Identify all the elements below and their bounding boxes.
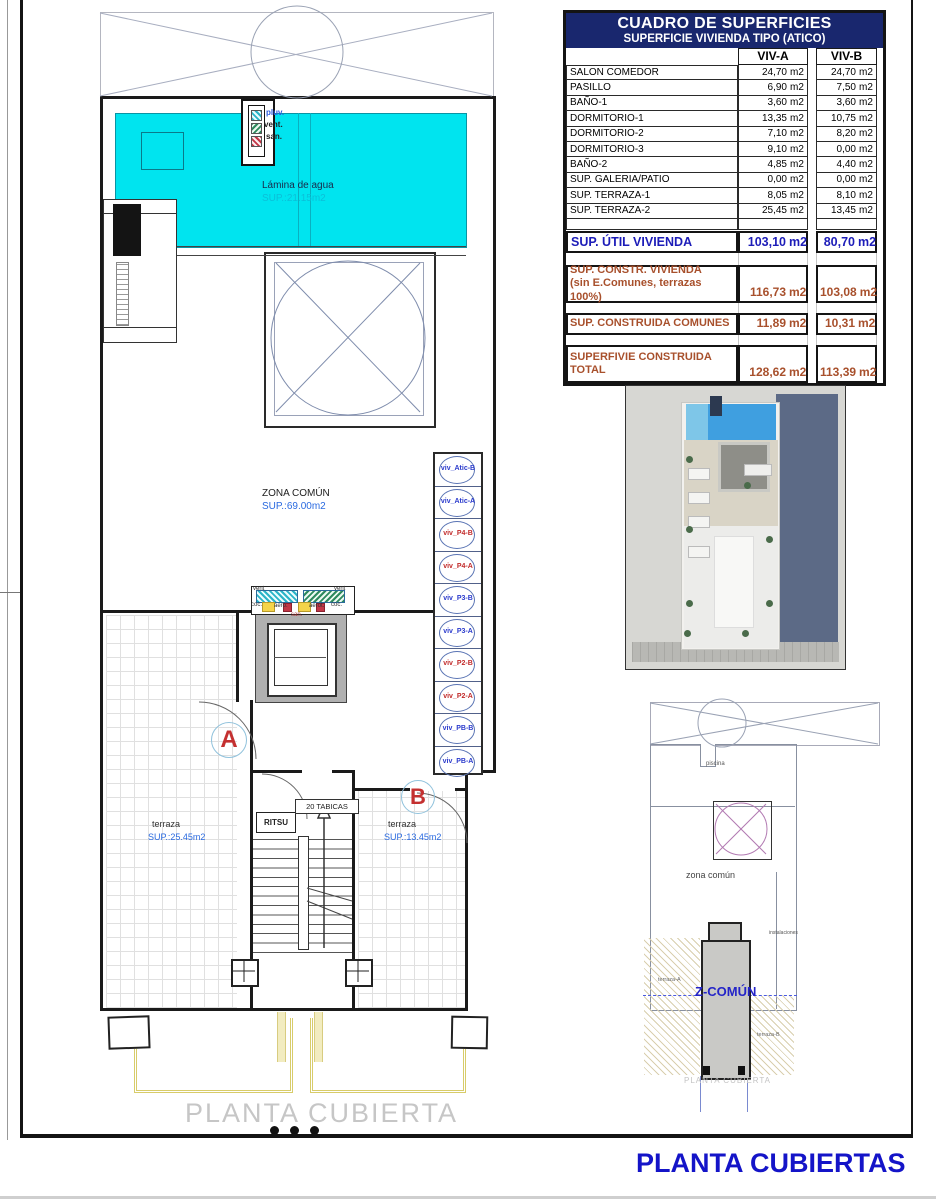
- wall-segment: [100, 96, 103, 1011]
- render-roof-box: [710, 396, 722, 416]
- column-marker: [345, 959, 373, 987]
- riser-label-vent: vent.: [264, 120, 283, 129]
- render-plant: [744, 482, 751, 489]
- parapet-outline: [310, 1018, 466, 1093]
- terraza-a-label: terraza: [152, 819, 180, 829]
- site-caption: PLANTA CUBIERTA: [684, 1076, 771, 1085]
- total-label: SUPERFIVIE CONSTRUIDATOTAL: [566, 345, 738, 383]
- viv-b-value: 7,50m2: [816, 80, 877, 95]
- tabicas-box: 20 TABICAS: [295, 799, 359, 814]
- frame-line-bottom: [20, 1134, 913, 1138]
- total-section-row: SUPERFIVIE CONSTRUIDATOTAL 128,62m2 113,…: [566, 345, 883, 383]
- pool-area-label: SUP.:21.15m2: [262, 193, 326, 204]
- render-plant: [686, 600, 693, 607]
- site-core-foot: [703, 1066, 710, 1075]
- riser-cell-label: viv_Atic-A: [435, 498, 481, 505]
- row-label: BAÑO-2: [566, 157, 738, 172]
- row-label: SUP. TERRAZA-2: [566, 204, 738, 219]
- render-pool-shallow: [686, 404, 708, 440]
- column-marker: [231, 959, 259, 987]
- annex-ladder: [116, 262, 129, 326]
- riser-cell-label: viv_PB-A: [435, 758, 481, 765]
- door-b-letter: B: [410, 784, 426, 810]
- stair-landing: [256, 953, 352, 1007]
- row-label: BAÑO-1: [566, 96, 738, 111]
- stair-stringer: [298, 836, 309, 950]
- table-row: DORMITORIO-113,35m210,75m2: [566, 111, 883, 126]
- page-edge-line: [0, 1196, 936, 1199]
- riser-label-san: san.: [266, 132, 282, 141]
- terraza-b-area-label: SUP.:13.45m2: [384, 832, 441, 842]
- render-lounger: [688, 546, 710, 558]
- frame-line-left: [20, 0, 23, 1138]
- site-piscina-label: piscina: [706, 761, 725, 767]
- door-a-letter: A: [220, 726, 237, 754]
- site-terraza-a-label: terraza-A: [658, 977, 681, 983]
- riser-chip-pluvial: [251, 110, 262, 121]
- site-zona-comun-label: zona común: [686, 870, 735, 880]
- surface-table: CUADRO DE SUPERFICIES SUPERFICIE VIVIEND…: [563, 10, 886, 386]
- render-lounger: [688, 492, 710, 504]
- viv-b-value: 8,20m2: [816, 127, 877, 142]
- row-label: SUP. GALERIA/PATIO: [566, 173, 738, 188]
- skylight-inner-frame: [274, 262, 424, 416]
- viv-a-value: 9,10m2: [738, 142, 808, 157]
- viv-b-value: 10,75m2: [816, 111, 877, 126]
- riser-cell: viv_P3-B: [435, 584, 481, 617]
- render-lounger: [688, 468, 710, 480]
- wall-segment: [465, 770, 468, 1011]
- gap-row: [566, 335, 883, 345]
- frame-line-left-thin: [7, 0, 8, 1140]
- viv-a-value: 4,85m2: [738, 157, 808, 172]
- site-instalaciones-label: instalaciones: [769, 930, 798, 936]
- shaft-coc-label: coc.: [251, 602, 262, 608]
- render-plant: [742, 630, 749, 637]
- render-plant: [686, 526, 693, 533]
- pool-name-label: Lámina de agua: [262, 180, 334, 191]
- annex-bar: [103, 327, 177, 343]
- annex-chimney: [113, 204, 141, 256]
- comunes-section-row: SUP. CONSTRUIDA COMUNES 11,89m2 10,31m2: [566, 313, 883, 335]
- pool-walkway: [174, 246, 466, 256]
- zona-comun-label: ZONA COMÚN: [262, 488, 330, 499]
- riser-cell: viv_P4-B: [435, 519, 481, 552]
- pool-step-outline: [141, 132, 184, 170]
- comunes-label: SUP. CONSTRUIDA COMUNES: [566, 313, 738, 335]
- elevator-car-line: [274, 657, 326, 658]
- empty-cell: [566, 48, 738, 65]
- plan-caption: PLANTA CUBIERTA: [185, 1098, 458, 1129]
- column-gap: [808, 48, 816, 65]
- shaft-coc-label: coc.: [331, 602, 342, 608]
- zona-comun-area-label: SUP.:69.00m2: [262, 501, 326, 512]
- row-label: PASILLO: [566, 80, 738, 95]
- riser-cell: viv_Atic-A: [435, 487, 481, 520]
- wall-segment: [250, 770, 302, 773]
- table-row: BAÑO-24,85m24,40m2: [566, 157, 883, 172]
- site-skylight: [713, 801, 772, 860]
- constr-section-row: SUP. CONSTR. VIVIENDA(sin E.Comunes, ter…: [566, 265, 883, 303]
- comunes-viv-a: 11,89m2: [738, 313, 808, 335]
- shaft-aero-label: aero.: [274, 603, 288, 609]
- viv-a-value: 6,90m2: [738, 80, 808, 95]
- render-plant: [766, 536, 773, 543]
- viv-b-value: 0,00m2: [816, 142, 877, 157]
- tabicas-label: 20 TABICAS: [306, 802, 348, 811]
- riser-cell: viv_P3-A: [435, 617, 481, 650]
- riser-chip-san: [251, 136, 262, 147]
- table-column-header: VIV-A VIV-B: [566, 48, 883, 65]
- riser-cell: viv_Atic-B: [435, 454, 481, 487]
- render-lounger: [744, 464, 772, 476]
- util-label: SUP. ÚTIL VIVIENDA: [566, 231, 738, 253]
- door-b-marker: B: [401, 780, 435, 814]
- viv-a-value: 0,00m2: [738, 173, 808, 188]
- riser-cell-label: viv_P2-A: [435, 693, 481, 700]
- terraza-b-label: terraza: [388, 819, 416, 829]
- row-label: DORMITORIO-2: [566, 127, 738, 142]
- riser-cell: viv_PB-A: [435, 747, 481, 779]
- table-row: PASILLO6,90m27,50m2: [566, 80, 883, 95]
- wall-segment: [455, 788, 468, 791]
- shaft-san-label: san.: [291, 612, 302, 618]
- constr-viv-b: 103,08m2: [816, 265, 877, 303]
- table-title: CUADRO DE SUPERFICIES: [566, 15, 883, 33]
- gap-row: [566, 303, 883, 313]
- terraza-a-floor: [106, 615, 237, 1008]
- table-row: SUP. TERRAZA-18,05m28,10m2: [566, 188, 883, 203]
- riser-stack: viv_Atic-B viv_Atic-A viv_P4-B viv_P4-A …: [433, 452, 483, 775]
- gap-row: [566, 253, 883, 265]
- util-total-row: SUP. ÚTIL VIVIENDA 103,10m2 80,70m2: [566, 231, 883, 253]
- site-core: [701, 940, 751, 1080]
- table-subtitle: SUPERFICIE VIVIENDA TIPO (ATICO): [566, 33, 883, 45]
- drawing-sheet: pluv. vent. san. Lámina de agua SUP.:21.…: [0, 0, 936, 1200]
- site-core-foot: [738, 1066, 745, 1075]
- wall-segment: [100, 1008, 468, 1011]
- table-row: DORMITORIO-27,10m28,20m2: [566, 127, 883, 142]
- door-a-marker: A: [211, 722, 247, 758]
- constr-label: SUP. CONSTR. VIVIENDA(sin E.Comunes, ter…: [566, 265, 738, 303]
- column-viv-a: VIV-A: [738, 48, 808, 65]
- viv-b-value: 24,70m2: [816, 65, 877, 80]
- row-label: DORMITORIO-3: [566, 142, 738, 157]
- riser-cell-label: viv_P3-B: [435, 595, 481, 602]
- riser-cell: viv_P2-B: [435, 649, 481, 682]
- viv-b-value: 4,40m2: [816, 157, 877, 172]
- shaft-vent-label: vent: [334, 586, 345, 592]
- riser-label-pluv: pluv.: [266, 108, 284, 117]
- ritsu-label: RITSU: [264, 818, 288, 827]
- table-row: SUP. GALERIA/PATIO0,00m20,00m2: [566, 173, 883, 188]
- riser-cell-label: viv_P2-B: [435, 660, 481, 667]
- wall-segment: [100, 96, 496, 99]
- viv-b-value: 13,45m2: [816, 204, 877, 219]
- total-viv-a: 128,62m2: [738, 345, 808, 383]
- util-viv-b: 80,70m2: [816, 231, 877, 253]
- crossed-roof-rect: [100, 12, 494, 98]
- constr-viv-a: 116,73m2: [738, 265, 808, 303]
- total-viv-b: 113,39m2: [816, 345, 877, 383]
- corner-box: [451, 1016, 489, 1050]
- blank-row: [566, 219, 883, 230]
- aerial-render: [625, 385, 846, 670]
- render-plant: [766, 600, 773, 607]
- site-crossed-rect: [650, 702, 880, 746]
- row-label: SALON COMEDOR: [566, 65, 738, 80]
- surface-table-header: CUADRO DE SUPERFICIES SUPERFICIE VIVIEND…: [566, 13, 883, 48]
- util-viv-a: 103,10m2: [738, 231, 808, 253]
- riser-cell: viv_P2-A: [435, 682, 481, 715]
- pool-water: [174, 199, 467, 248]
- riser-cell-label: viv_P4-A: [435, 563, 481, 570]
- column-viv-b: VIV-B: [816, 48, 877, 65]
- shaft-aerot-label: aerot.: [309, 603, 324, 609]
- row-label: DORMITORIO-1: [566, 111, 738, 126]
- viv-a-value: 24,70m2: [738, 65, 808, 80]
- viv-a-value: 25,45m2: [738, 204, 808, 219]
- site-terraza-a-hatch: [644, 938, 700, 1075]
- shaft-vent-label: vent: [253, 586, 264, 592]
- wall-segment: [493, 96, 496, 772]
- viv-b-value: 0,00m2: [816, 173, 877, 188]
- riser-cell: viv_PB-B: [435, 714, 481, 747]
- viv-a-value: 13,35m2: [738, 111, 808, 126]
- terraza-a-area-label: SUP.:25.45m2: [148, 832, 205, 842]
- table-row: BAÑO-13,60m23,60m2: [566, 96, 883, 111]
- frame-stub-left: [0, 592, 21, 593]
- wall-segment: [236, 612, 239, 702]
- wall-segment: [332, 770, 355, 773]
- render-plant: [686, 456, 693, 463]
- render-roof-panel: [714, 536, 754, 628]
- table-row: SALON COMEDOR24,70m224,70m2: [566, 65, 883, 80]
- viv-a-value: 7,10m2: [738, 127, 808, 142]
- site-instalaciones-line: [776, 872, 777, 1009]
- corner-box: [107, 1015, 150, 1049]
- riser-chip-vent: [251, 123, 262, 134]
- table-row: DORMITORIO-39,10m20,00m2: [566, 142, 883, 157]
- ritsu-box: RITSU: [256, 812, 296, 833]
- sheet-title: PLANTA CUBIERTAS: [636, 1148, 906, 1179]
- comunes-viv-b: 10,31m2: [816, 313, 877, 335]
- parapet-outline: [134, 1018, 293, 1093]
- site-core-label: Z-COMÚN: [695, 984, 756, 999]
- frame-line-right: [911, 0, 913, 1138]
- row-label: SUP. TERRAZA-1: [566, 188, 738, 203]
- viv-a-value: 3,60m2: [738, 96, 808, 111]
- riser-cell: viv_P4-A: [435, 552, 481, 585]
- riser-cell-label: viv_PB-B: [435, 725, 481, 732]
- viv-b-value: 8,10m2: [816, 188, 877, 203]
- render-plant: [684, 630, 691, 637]
- riser-cell-label: viv_P3-A: [435, 628, 481, 635]
- viv-a-value: 8,05m2: [738, 188, 808, 203]
- table-row: SUP. TERRAZA-225,45m213,45m2: [566, 204, 883, 219]
- riser-cell-label: viv_P4-B: [435, 530, 481, 537]
- riser-cell-label: viv_Atic-B: [435, 465, 481, 472]
- viv-b-value: 3,60m2: [816, 96, 877, 111]
- site-terraza-b-label: terraza-B: [757, 1032, 780, 1038]
